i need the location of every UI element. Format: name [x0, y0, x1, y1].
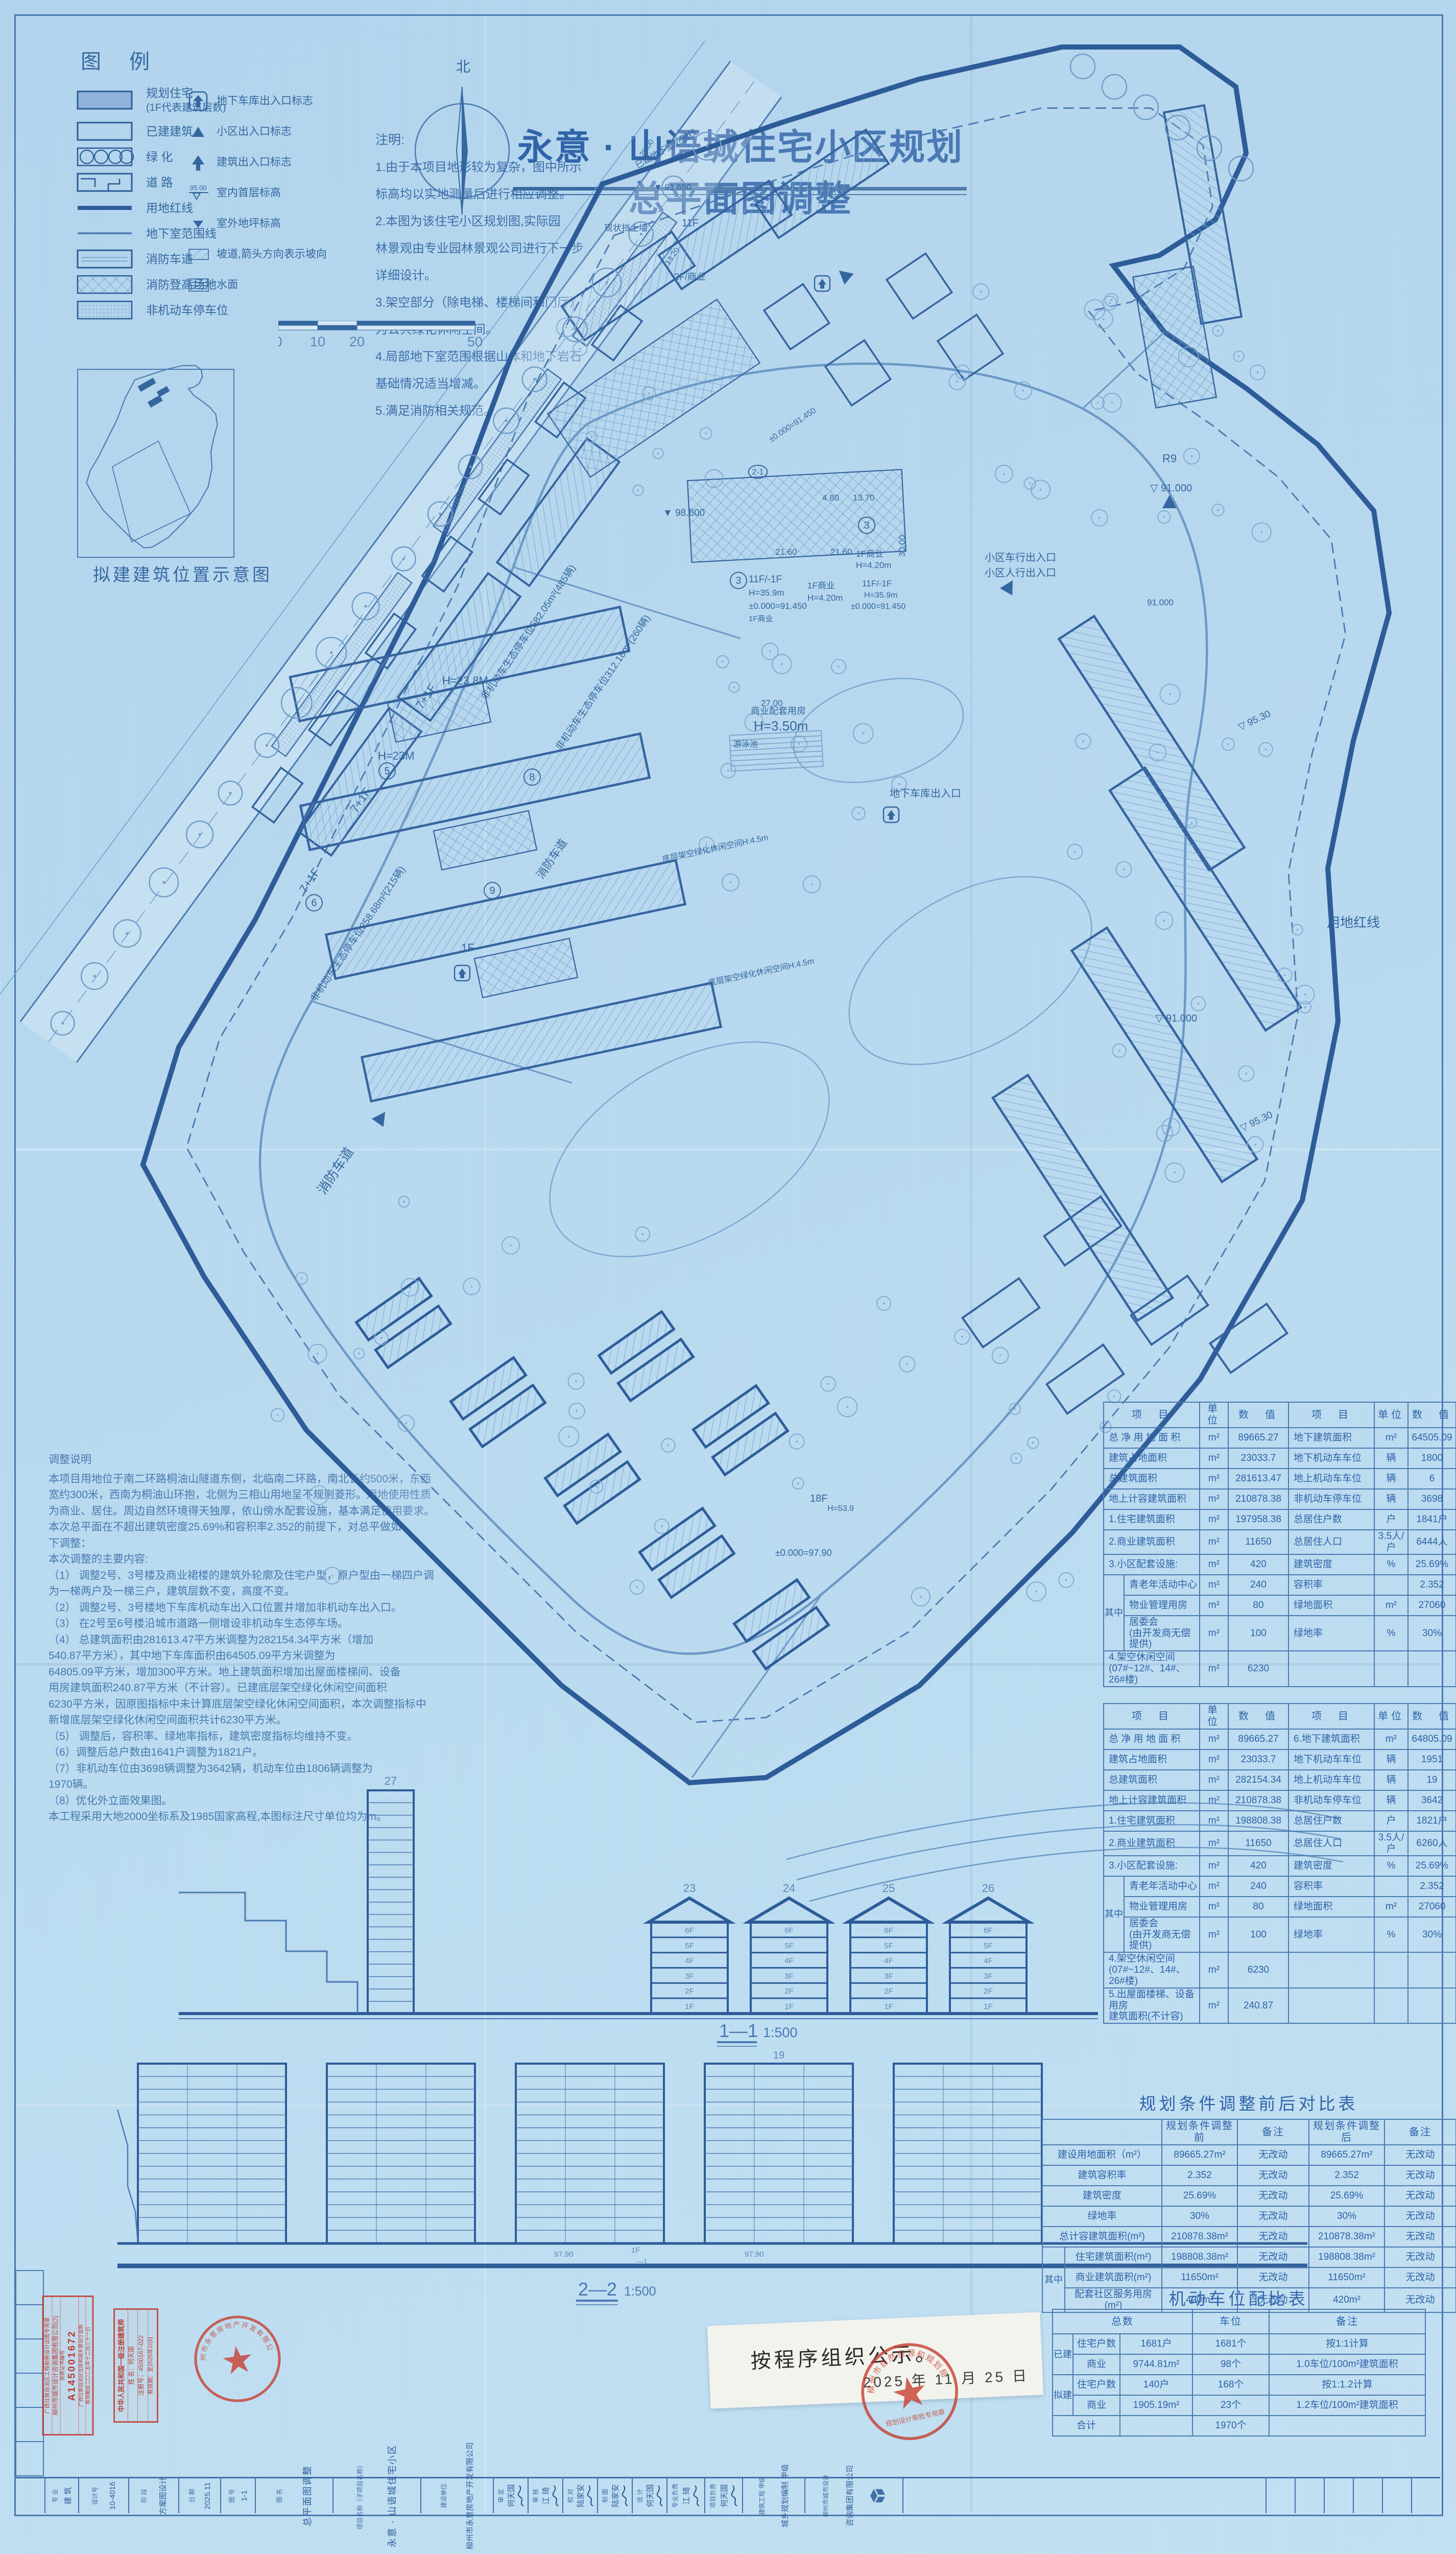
svg-text:2F: 2F: [984, 1987, 993, 1996]
svg-text:1F: 1F: [631, 2246, 640, 2255]
red-line-icon: [76, 196, 137, 220]
svg-text:3: 3: [864, 520, 869, 531]
svg-text:0: 0: [278, 334, 282, 349]
greenery-icon: [76, 145, 137, 169]
legend-item-label: 已建建筑: [146, 125, 193, 138]
svg-text:1F: 1F: [461, 941, 474, 954]
indicator-table-before: 项 目单位数 值项 目单位数 值总 净 用 地 面 积m²89665.27地下建…: [1103, 1402, 1455, 1687]
legend-item-label: 建筑出入口标志: [217, 156, 292, 169]
svg-text:1F商业: 1F商业: [807, 581, 835, 590]
legend-item: 地下车库出入口标志: [187, 86, 327, 116]
svg-text:50: 50: [467, 334, 483, 349]
svg-text:地下车库出入口: 地下车库出入口: [890, 788, 961, 799]
svg-text:5F: 5F: [984, 1942, 993, 1950]
svg-text:4F: 4F: [884, 1957, 893, 1966]
archive-boxes: [16, 2271, 43, 2476]
svg-text:1F: 1F: [884, 2002, 893, 2011]
svg-text:97.90: 97.90: [554, 2250, 574, 2259]
architect-stamp-line: 注册号：4500167-022: [137, 2310, 145, 2421]
svg-text:20: 20: [349, 334, 365, 349]
svg-text:▽ 91.000: ▽ 91.000: [1155, 1013, 1197, 1024]
road-icon: [76, 171, 137, 194]
legend-item-label: 坡道,箭头方向表示坡向: [217, 248, 327, 261]
legend-item: 坡道,箭头方向表示坡向: [187, 239, 327, 270]
svg-text:▼ 91.650: ▼ 91.650: [654, 182, 691, 192]
svg-text:2F: 2F: [784, 1987, 794, 1996]
svg-text:1:500: 1:500: [624, 2284, 656, 2299]
svg-text:21.60: 21.60: [830, 547, 852, 557]
svg-text:规划设计审批专用章: 规划设计审批专用章: [885, 2407, 946, 2428]
svg-text:6F: 6F: [884, 1926, 893, 1935]
svg-text:6: 6: [311, 897, 317, 909]
legend-item-label: 室内首层标高: [217, 187, 281, 199]
svg-text:3F: 3F: [984, 1972, 993, 1980]
svg-text:5F: 5F: [784, 1942, 794, 1950]
comparison-table: 规划条件调整前备注规划条件调整后备注建设用地面积（m²）89665.27m²无改…: [1042, 2119, 1455, 2313]
legend-item-label: 消防车道: [146, 252, 193, 266]
svg-text:2—2: 2—2: [578, 2279, 617, 2300]
svg-text:—1: —1: [636, 2257, 648, 2265]
indicator-table-after: 项 目单位数 值项 目单位数 值总 净 用 地 面 积m²89665.276.地…: [1103, 1703, 1455, 2024]
cert-stamp-line: 广西壮族自治区工程勘察设计出图专用章: [44, 2297, 50, 2434]
svg-text:2F: 2F: [884, 1987, 893, 1996]
svg-text:H=3.50m: H=3.50m: [754, 718, 808, 734]
svg-text:18F: 18F: [810, 1493, 827, 1504]
svg-text:北: 北: [456, 59, 470, 75]
indoor-level-icon: 95.00: [187, 182, 210, 204]
svg-text:±0.000=91.450: ±0.000=91.450: [749, 601, 807, 611]
svg-text:小区人行出入口: 小区人行出入口: [985, 567, 1056, 579]
svg-text:现状挡土墙: 现状挡土墙: [604, 223, 648, 233]
cert-stamp-line: 柳州市城市设计咨询集团有限公司(2): [52, 2297, 59, 2434]
svg-text:2F: 2F: [685, 1987, 694, 1996]
svg-text:8: 8: [529, 772, 535, 783]
svg-text:27.00: 27.00: [761, 698, 783, 708]
svg-text:±0.000=97.90: ±0.000=97.90: [775, 1548, 831, 1558]
svg-text:5F: 5F: [884, 1942, 893, 1950]
svg-text:26: 26: [982, 1882, 994, 1895]
svg-text:H=23M: H=23M: [378, 749, 415, 762]
svg-text:9: 9: [489, 885, 495, 896]
svg-text:±0.000=91.450: ±0.000=91.450: [851, 602, 905, 611]
architect-stamp-line: 有效期：至2025年10月: [148, 2310, 154, 2421]
svg-text:25: 25: [882, 1882, 895, 1895]
district-entrance-icon: [187, 121, 210, 143]
svg-text:5F: 5F: [685, 1942, 694, 1950]
architect-stamp-line: 姓 名：何天国: [128, 2310, 135, 2421]
legend-item-label: 室外地坪标高: [217, 218, 281, 230]
garage-entrance-icon: [187, 90, 210, 112]
svg-text:R9: R9: [1162, 452, 1177, 465]
svg-text:5: 5: [384, 766, 390, 777]
svg-text:H=35.9m: H=35.9m: [864, 591, 897, 600]
legend-item-label: 非机动车停车位: [146, 303, 228, 317]
building-entrance-icon: [187, 151, 210, 174]
svg-text:1F: 1F: [685, 2002, 694, 2011]
svg-text:19: 19: [773, 2050, 784, 2061]
legend-item-label: 地下车库出入口标志: [217, 95, 313, 107]
svg-text:11F: 11F: [682, 218, 699, 229]
outdoor-level-icon: [187, 212, 210, 235]
architect-stamp-line: 中华人民共和国一级注册建筑师: [118, 2310, 125, 2421]
north-compass-icon: 北: [415, 59, 509, 215]
svg-text:95.00: 95.00: [190, 184, 207, 192]
ramp-icon: [187, 243, 210, 266]
section-1-1: 276F5F4F3F2F1F236F5F4F3F2F1F246F5F4F3F2F…: [179, 1775, 1098, 2046]
svg-text:H=4.20m: H=4.20m: [856, 560, 891, 570]
legend-item: 建筑出入口标志: [187, 147, 327, 178]
company-round-seal: 柳州市永意房地产开发有限公司: [180, 2301, 295, 2417]
scale-bar: 0102050: [278, 321, 493, 351]
legend-item: 非机动车停车位: [76, 297, 228, 323]
svg-text:4F: 4F: [784, 1957, 794, 1966]
cert-stamp-line: 广西壮族自治区住房和城乡建设厅监制: [78, 2297, 84, 2434]
svg-text:2-1: 2-1: [752, 468, 763, 477]
legend-item-label: 小区出入口标志: [217, 126, 292, 138]
approval-round-seal: 柳州市自然资源和规划局规划设计审批专用章: [841, 2325, 979, 2463]
svg-text:4F: 4F: [984, 1957, 993, 1966]
design-certificate-stamp: 广西壮族自治区工程勘察设计出图专用章柳州市城市设计咨询集团有限公司(2)资质证书…: [43, 2297, 92, 2434]
svg-text:24: 24: [783, 1882, 795, 1895]
svg-text:H=4.20m: H=4.20m: [807, 593, 843, 603]
svg-text:用地红线: 用地红线: [1327, 915, 1380, 930]
cert-stamp-line: 有效期至二〇二五年十二月三十一日: [85, 2297, 91, 2434]
svg-text:30.00: 30.00: [897, 535, 907, 557]
location-diagram: [78, 366, 234, 557]
svg-text:23: 23: [683, 1882, 696, 1895]
svg-text:1—1: 1—1: [719, 2020, 758, 2041]
water-icon: [187, 274, 210, 296]
planned-residence-icon: [76, 88, 137, 112]
svg-text:游泳池: 游泳池: [733, 740, 758, 749]
bike-parking-icon: [76, 298, 137, 322]
legend-item: 小区出入口标志: [187, 116, 327, 147]
fire-lane-icon: [76, 247, 137, 271]
svg-text:11F/-1F: 11F/-1F: [862, 579, 892, 588]
fire-site-icon: [76, 273, 137, 296]
svg-text:柳州市自然资源和规划局: 柳州市自然资源和规划局: [859, 2341, 949, 2396]
svg-text:6F: 6F: [784, 1926, 794, 1935]
existing-building-icon: [76, 120, 137, 143]
svg-text:2F/商业: 2F/商业: [674, 272, 706, 282]
svg-text:3: 3: [735, 575, 741, 586]
registered-architect-stamp: 中华人民共和国一级注册建筑师姓 名：何天国注册号：4500167-022有效期：…: [115, 2310, 157, 2421]
svg-text:91.000: 91.000: [1147, 598, 1174, 607]
svg-text:1F: 1F: [784, 2002, 794, 2011]
legend-item-label: 道 路: [146, 176, 173, 189]
svg-text:3F: 3F: [784, 1972, 794, 1980]
svg-text:11F/-1F: 11F/-1F: [749, 574, 782, 585]
svg-text:▼ 98.600: ▼ 98.600: [663, 508, 705, 518]
svg-text:H=23.8M: H=23.8M: [442, 674, 488, 687]
svg-text:1F商业: 1F商业: [856, 549, 884, 559]
svg-text:1:500: 1:500: [763, 2025, 798, 2040]
legend-items-right: 地下车库出入口标志小区出入口标志建筑出入口标志95.00室内首层标高室外地坪标高…: [187, 86, 327, 300]
svg-text:13.70: 13.70: [853, 493, 875, 503]
legend-item: 95.00室内首层标高: [187, 178, 327, 208]
legend-item-label: 水面: [217, 279, 238, 291]
legend-item: 水面: [187, 270, 327, 300]
svg-text:21.60: 21.60: [775, 547, 797, 557]
svg-text:6F: 6F: [984, 1926, 993, 1935]
svg-text:4.80: 4.80: [822, 493, 839, 503]
cert-stamp-line: A145001672: [67, 2297, 77, 2434]
svg-text:小区车行出入口: 小区车行出入口: [985, 552, 1056, 563]
svg-text:4F: 4F: [685, 1957, 694, 1966]
parking-table: 总数车位备注已建住宅户数1681户1681个按1:1计算商业9744.81m²9…: [1052, 2309, 1425, 2437]
svg-text:H=53.9: H=53.9: [827, 1504, 854, 1513]
cert-stamp-line: 资质证书编号: [60, 2297, 66, 2434]
svg-text:1F商业: 1F商业: [749, 614, 773, 623]
svg-text:3F: 3F: [884, 1972, 893, 1980]
legend-item-label: 绿 化: [146, 150, 173, 163]
blueprint-sheet: 北: [0, 0, 1456, 2554]
svg-text:3F: 3F: [685, 1972, 694, 1980]
legend-item-label: 用地红线: [146, 201, 193, 215]
svg-text:10: 10: [310, 334, 325, 349]
svg-text:H=35.9m: H=35.9m: [749, 588, 784, 598]
svg-text:27: 27: [385, 1775, 397, 1787]
basement-line-icon: [76, 222, 137, 245]
svg-text:1F: 1F: [984, 2002, 993, 2011]
svg-text:97.90: 97.90: [745, 2250, 764, 2259]
legend-item: 室外地坪标高: [187, 208, 327, 239]
svg-text:6F: 6F: [685, 1926, 694, 1935]
svg-text:▽ 91.000: ▽ 91.000: [1150, 483, 1192, 494]
